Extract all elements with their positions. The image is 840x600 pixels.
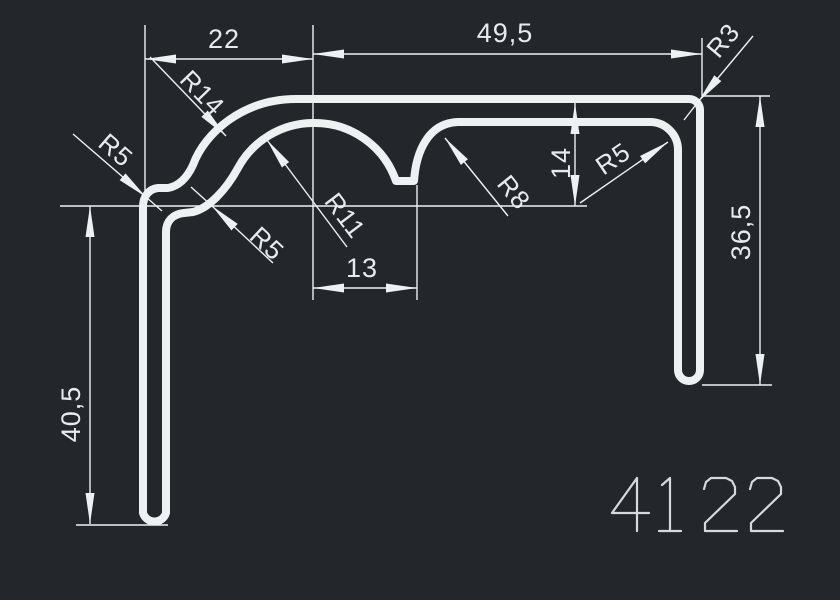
radius-label: R5 [590, 136, 636, 181]
dimension-label: 49,5 [477, 18, 534, 48]
dimension-label: 40,5 [56, 386, 86, 443]
part-number[interactable] [612, 478, 783, 531]
drawing-svg: 22 49,5 13 14 36,5 40,5 R14 R5 R5 R11 [0, 0, 840, 600]
radius-label: R5 [93, 127, 139, 173]
dimension-top-right-width[interactable]: 49,5 [313, 18, 702, 54]
part-number-digit [704, 478, 737, 531]
dimension-top-left-width[interactable]: 22 [145, 24, 313, 59]
dimension-right-leg-height[interactable]: 36,5 [726, 96, 760, 385]
dimension-label: 22 [208, 24, 240, 54]
radius-r5-lower[interactable]: R5 [191, 187, 290, 266]
radius-r5-left[interactable]: R5 [73, 127, 162, 211]
leader-line [445, 138, 508, 216]
radius-r11[interactable]: R11 [267, 140, 372, 247]
radius-label: R14 [174, 64, 231, 121]
dimension-label: 36,5 [726, 204, 756, 261]
dimension-left-leg-height[interactable]: 40,5 [56, 206, 90, 524]
radius-r5-right[interactable]: R5 [580, 136, 668, 203]
part-number-digit [659, 478, 681, 531]
leader-overshoot [146, 197, 162, 211]
cad-canvas[interactable]: 22 49,5 13 14 36,5 40,5 R14 R5 R5 R11 [0, 0, 840, 600]
dimension-label: 13 [346, 253, 378, 283]
radius-label: R3 [700, 17, 746, 63]
radius-r8[interactable]: R8 [445, 138, 537, 216]
radius-label: R5 [244, 220, 290, 266]
dimension-notch-width[interactable]: 13 [313, 253, 417, 288]
dimension-label: 14 [546, 147, 576, 179]
part-number-digit [750, 478, 783, 531]
radius-label: R11 [319, 187, 372, 244]
part-number-digit [612, 478, 649, 531]
radius-label: R8 [491, 169, 536, 215]
